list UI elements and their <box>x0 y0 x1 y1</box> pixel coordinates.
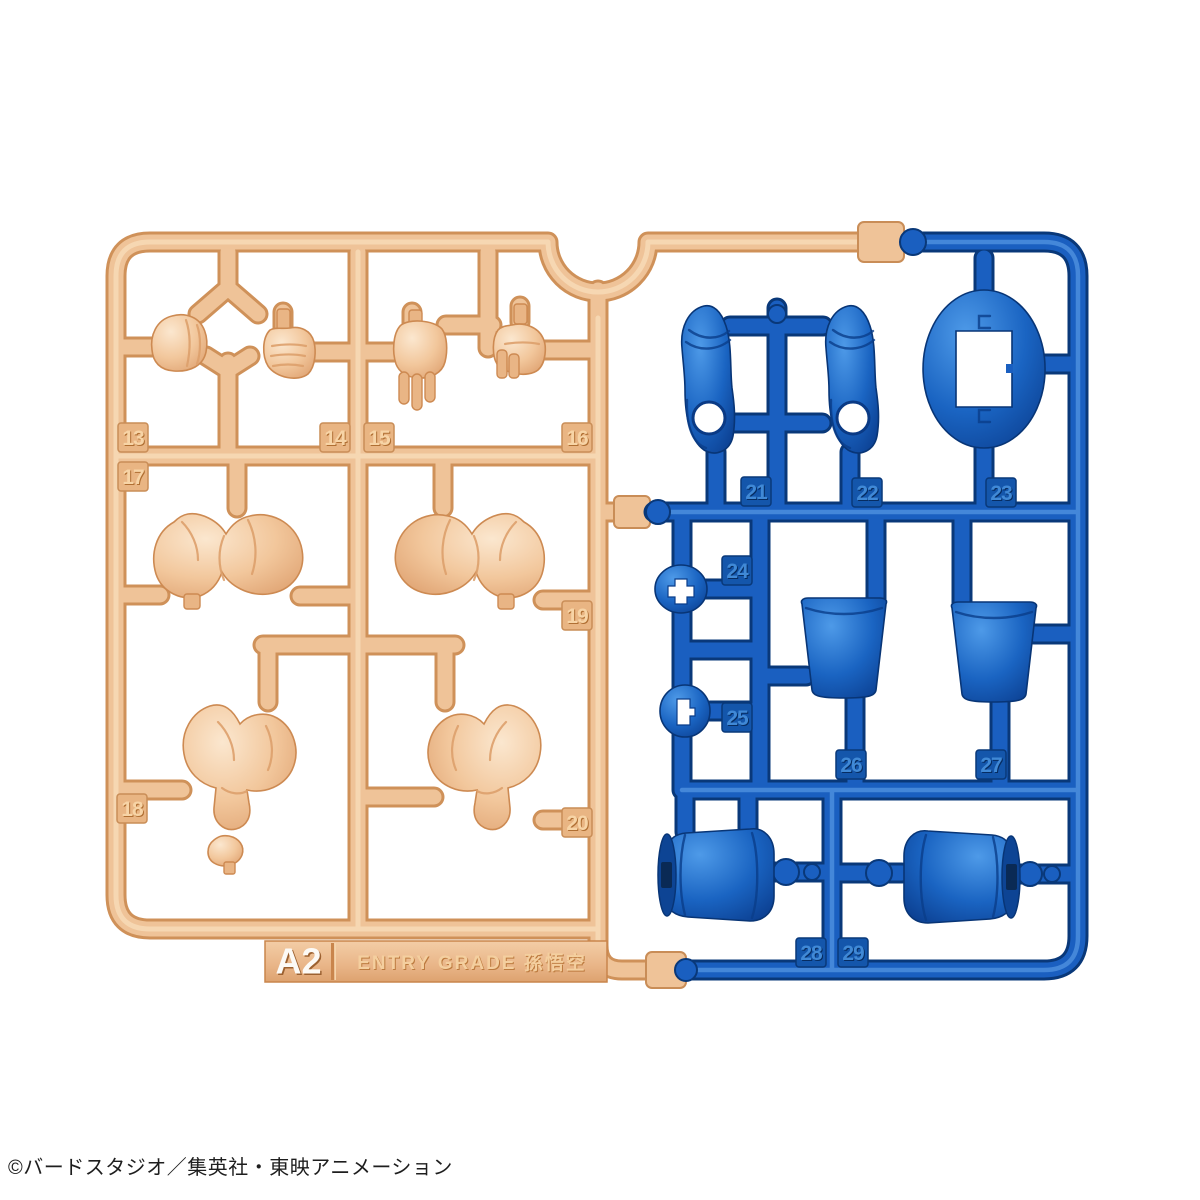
part-19-arm <box>395 514 544 609</box>
part-tag-29: 2929 <box>838 938 868 967</box>
part-23-ring <box>923 290 1045 448</box>
part-28-boot <box>658 829 774 921</box>
part-tag-16: 1616 <box>562 423 592 452</box>
sprue-runner-photo: A2 A2 ENTRY GRADE 孫悟空 ENTRY GRADE 孫悟空 13… <box>0 0 1200 1200</box>
svg-text:28: 28 <box>800 942 823 965</box>
svg-text:27: 27 <box>980 754 1002 777</box>
svg-text:20: 20 <box>566 812 588 835</box>
svg-text:22: 22 <box>856 482 878 505</box>
part-21-boot-sole <box>682 306 735 453</box>
part-tag-27: 2727 <box>976 750 1006 779</box>
part-tag-21: 2121 <box>741 477 771 506</box>
part-26-boot-cuff <box>801 598 886 698</box>
part-27-boot-cuff <box>951 602 1036 702</box>
copyright-text: ©バードスタジオ／集英社・東映アニメーション <box>8 1151 453 1180</box>
part-22-boot-sole <box>826 306 879 453</box>
svg-text:23: 23 <box>990 482 1012 505</box>
svg-text:26: 26 <box>840 754 862 777</box>
svg-text:25: 25 <box>726 707 749 730</box>
part-tag-17: 1717 <box>118 462 148 491</box>
svg-text:21: 21 <box>745 481 768 504</box>
part-tag-19: 1919 <box>562 601 592 630</box>
runner-name-plate: A2 A2 ENTRY GRADE 孫悟空 ENTRY GRADE 孫悟空 <box>265 941 607 984</box>
runner-code: A2 <box>275 941 321 982</box>
part-tag-23: 2323 <box>986 478 1016 507</box>
sprue-runner-drawing: A2 A2 ENTRY GRADE 孫悟空 ENTRY GRADE 孫悟空 13… <box>0 0 1200 1200</box>
runner-joint-top <box>858 222 904 262</box>
part-tag-18: 1818 <box>117 794 147 823</box>
svg-text:24: 24 <box>726 560 749 583</box>
part-tag-25: 2525 <box>722 703 752 732</box>
part-14-fist <box>264 309 315 378</box>
part-25-joint-disc <box>660 685 710 737</box>
part-tag-20: 2020 <box>562 808 592 837</box>
part-16-fist <box>493 304 545 378</box>
svg-text:15: 15 <box>368 427 391 450</box>
svg-text:16: 16 <box>566 427 588 450</box>
part-tag-24: 2424 <box>722 556 752 585</box>
part-17-arm <box>154 514 303 609</box>
svg-text:19: 19 <box>566 605 588 628</box>
part-tag-14: 1414 <box>320 423 350 452</box>
part-18-arm <box>183 705 296 874</box>
svg-text:17: 17 <box>122 466 144 489</box>
part-tag-28: 2828 <box>796 938 826 967</box>
part-tag-22: 2222 <box>852 478 882 507</box>
part-24-joint-disc <box>655 565 707 613</box>
part-tag-26: 2626 <box>836 750 866 779</box>
part-20-arm <box>428 705 541 830</box>
part-tag-13: 1313 <box>118 423 148 452</box>
part-13-fist <box>152 315 207 372</box>
part-29-boot <box>904 831 1020 923</box>
svg-text:29: 29 <box>842 942 864 965</box>
kit-name: ENTRY GRADE 孫悟空 <box>357 951 587 974</box>
svg-text:18: 18 <box>121 798 144 821</box>
svg-text:14: 14 <box>324 427 347 450</box>
part-tag-15: 1515 <box>364 423 394 452</box>
svg-text:13: 13 <box>122 427 144 450</box>
